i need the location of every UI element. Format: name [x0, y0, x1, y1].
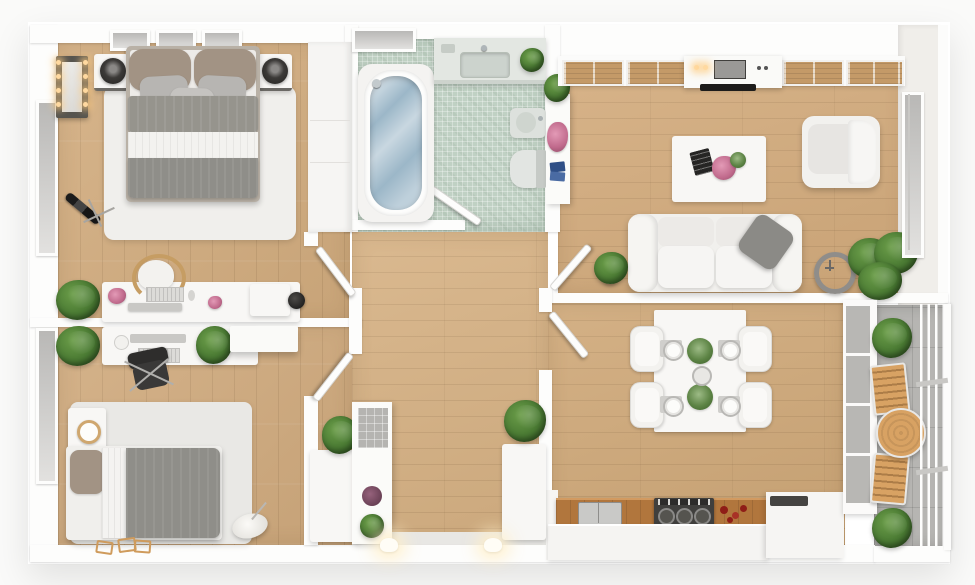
sofa-armrest-left: [628, 214, 658, 292]
desk2-monitor: [130, 334, 186, 343]
wall-hall-pillar-west: [349, 288, 362, 354]
shelf-books-blue: [550, 171, 566, 181]
toilet-tank: [536, 150, 546, 188]
table-flowers: [687, 384, 713, 410]
toilet-seat: [510, 150, 538, 188]
vanity-bulb-icon: [56, 60, 61, 65]
bathtub-water: [370, 76, 422, 210]
slatted-window: [562, 60, 624, 86]
vanity-mirror-glass: [62, 62, 82, 112]
table-glass: [692, 366, 712, 386]
slatted-window: [782, 60, 844, 86]
bathroom-window: [352, 28, 416, 52]
slipper-icon: [134, 539, 152, 553]
black-desk-lamp-icon: [288, 292, 305, 309]
living-east-window: [902, 92, 924, 258]
bed2-pillow: [70, 450, 104, 494]
kitchenette-knob: [764, 66, 768, 70]
slipper-icon: [95, 540, 114, 555]
wall-clock-icon: [77, 420, 101, 444]
balcony-railing: [920, 304, 946, 550]
wall-east-edge: [938, 25, 948, 305]
bed1-sheet: [128, 132, 258, 158]
kitchenette-cooktop: [714, 60, 746, 79]
wall-north-living: [558, 25, 940, 57]
wardrobe-shelf-line: [310, 162, 350, 163]
bedroom2-floating-shelf: [230, 326, 298, 352]
balcony-railing-outer: [944, 304, 951, 550]
hall-cabinet-right: [502, 444, 546, 540]
dining-chair: [630, 326, 664, 372]
kitchenette-light-icon: [694, 65, 699, 70]
slatted-window: [626, 60, 688, 86]
sink-divider: [598, 503, 599, 523]
plate: [663, 340, 684, 361]
desk1-monitor: [128, 303, 182, 311]
vanity-bulb-icon: [83, 102, 88, 107]
bed1-duvet-top: [128, 96, 258, 132]
shelf-purple-flowers: [362, 486, 382, 506]
clock-hand: [829, 260, 831, 271]
dining-chair: [738, 382, 772, 428]
stove-burner: [676, 508, 693, 525]
kitchenette-knob: [757, 66, 761, 70]
bedroom2-west-window: [36, 328, 58, 484]
coffee-table-sprig: [730, 152, 746, 168]
stove-burner: [658, 508, 675, 525]
vanity-bulb-icon: [56, 74, 61, 79]
kitchenette-light-icon: [703, 65, 708, 70]
vanity-bulb-icon: [83, 74, 88, 79]
plate: [663, 396, 684, 417]
desk1-chair-seat: [138, 260, 174, 290]
bidet-faucet-icon: [538, 116, 543, 121]
shelf-tufted-panel: [358, 408, 388, 448]
bedroom1-wardrobe: [308, 42, 352, 232]
wall-sconce-icon: [380, 538, 398, 552]
stove-burner: [694, 508, 711, 525]
wardrobe-shelf-line: [310, 120, 350, 121]
deck-chair: [870, 453, 910, 506]
dining-chair: [738, 326, 772, 372]
kitchenette-vent: [700, 84, 756, 91]
floor-plan-canvas: [0, 0, 975, 585]
plate: [720, 340, 741, 361]
wall-sconce-icon: [484, 538, 502, 552]
vanity-bulb-icon: [83, 88, 88, 93]
desk1-side-unit: [250, 284, 290, 316]
storage-shelves: [846, 306, 870, 506]
wall-stub-bedroom1: [304, 232, 318, 246]
wall-hall-east-upper: [539, 288, 552, 312]
red-fruit: [720, 506, 728, 514]
sink-faucet-icon: [481, 45, 487, 51]
red-fruit: [740, 505, 747, 512]
vanity-bulb-icon: [56, 102, 61, 107]
table-lamp-right-icon: [262, 58, 288, 84]
vanity-bulb-icon: [56, 88, 61, 93]
red-fruit: [727, 517, 733, 523]
balcony-round-table: [876, 408, 926, 458]
armchair-back: [848, 120, 876, 184]
vanity-bulb-icon: [83, 60, 88, 65]
desk2-mirror: [114, 335, 129, 350]
sofa-back-cushion: [658, 217, 714, 247]
slatted-window: [846, 60, 904, 86]
counter-tray: [770, 496, 808, 506]
red-fruit: [732, 512, 739, 519]
dining-chair: [630, 382, 664, 428]
desk1-mouse: [188, 290, 195, 301]
vanity-sink: [460, 52, 510, 78]
kitchen-sink: [578, 502, 622, 526]
kitchen-cabinet-face: [548, 524, 768, 560]
bed2-duvet: [126, 448, 220, 538]
table-flowers: [687, 338, 713, 364]
curtain-rod: [908, 94, 910, 250]
clock-hand: [825, 267, 834, 269]
stove-knob-strip: [658, 499, 710, 505]
bidet-basin: [516, 112, 536, 133]
bedroom1-west-window: [36, 100, 58, 256]
desk1-keyboard: [146, 287, 184, 302]
sofa-seat-cushion: [658, 246, 714, 288]
table-lamp-left-icon: [100, 58, 126, 84]
plate: [720, 396, 741, 417]
vanity-accessories: [441, 44, 455, 53]
bathtub-faucet-icon: [372, 79, 381, 88]
bed1-duvet-foot: [128, 158, 258, 198]
